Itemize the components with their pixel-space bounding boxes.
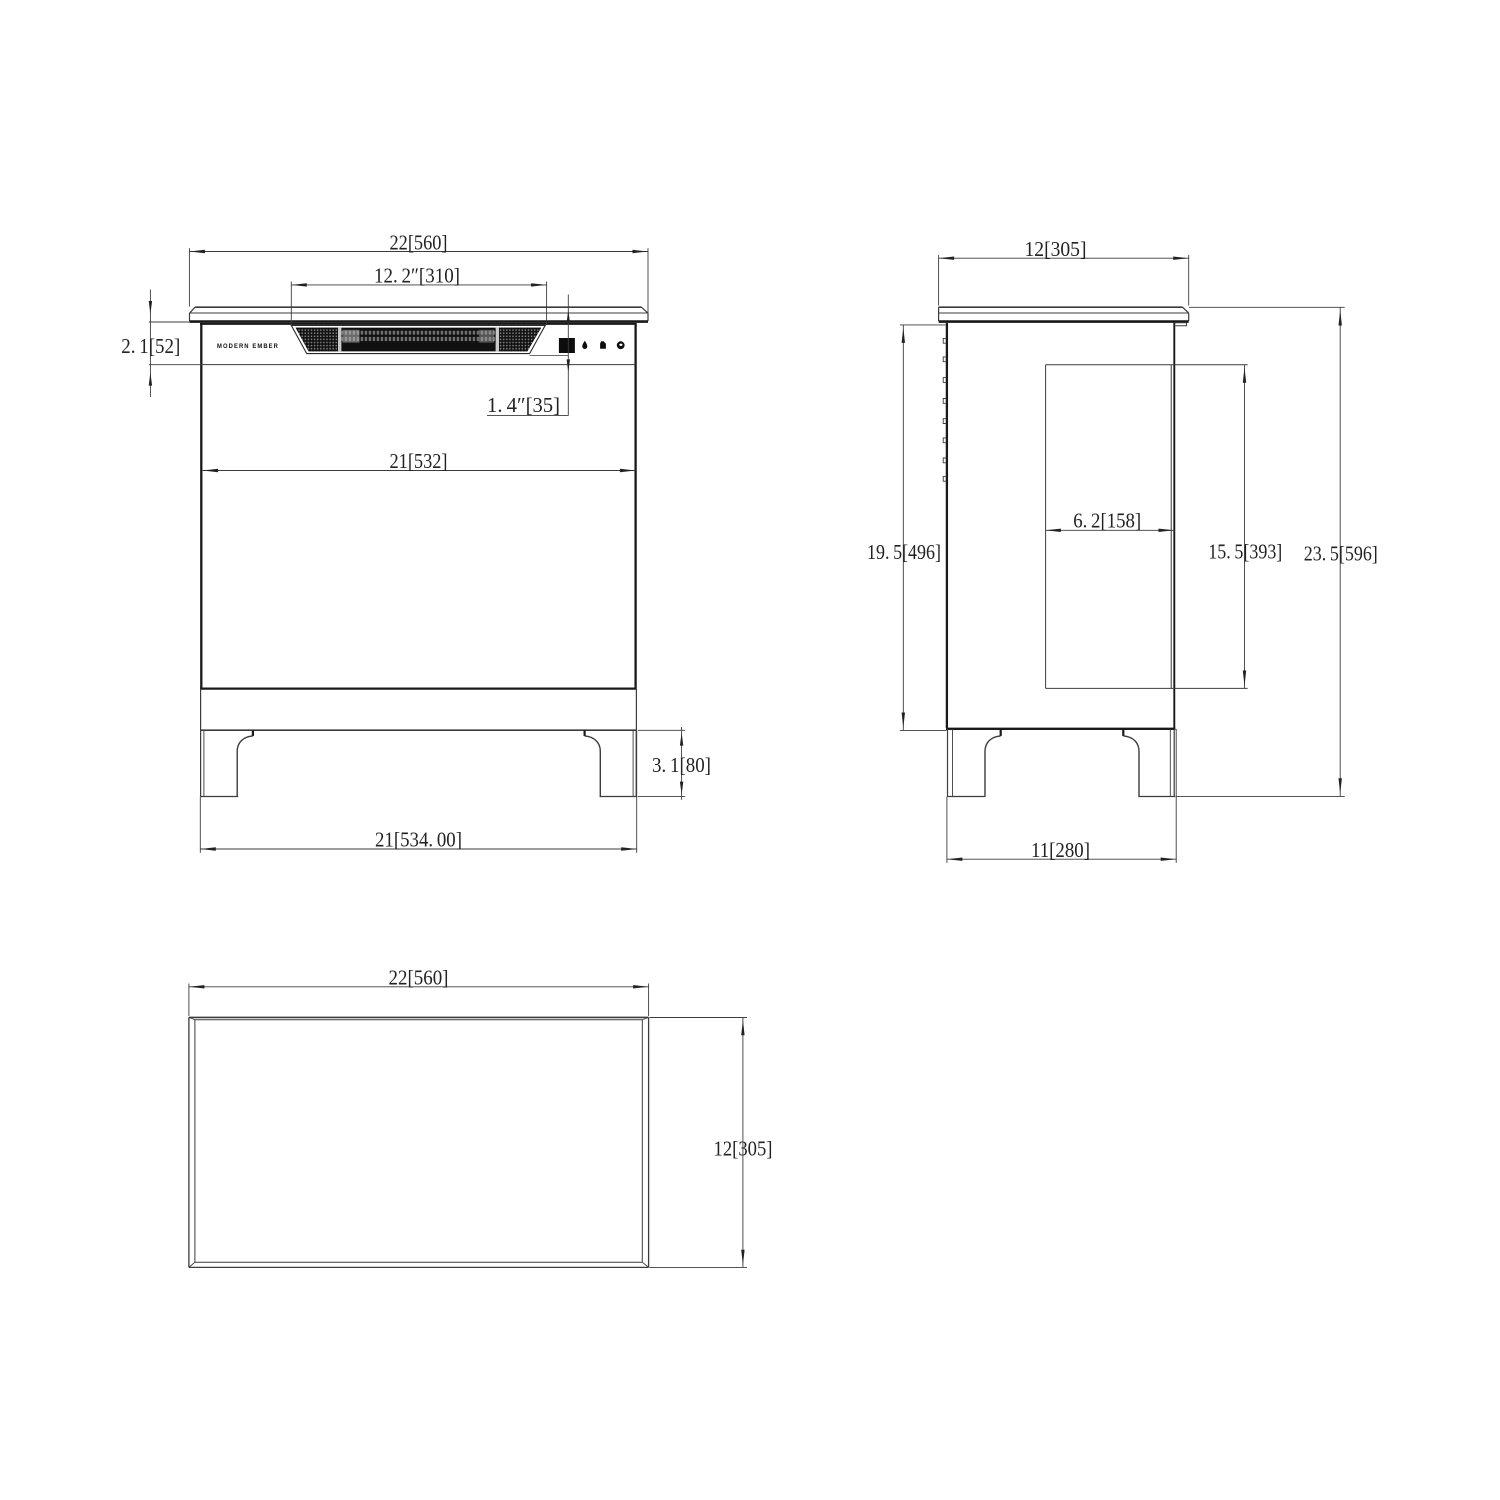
svg-text:21[534. 00]: 21[534. 00] (375, 827, 462, 851)
svg-text:22[560]: 22[560] (390, 230, 448, 254)
svg-text:21[532]: 21[532] (390, 449, 448, 473)
svg-text:MODERN EMBER: MODERN EMBER (217, 344, 279, 350)
svg-text:15. 5[393]: 15. 5[393] (1208, 540, 1282, 564)
svg-text:19. 5[496]: 19. 5[496] (867, 540, 941, 564)
svg-text:11[280]: 11[280] (1031, 838, 1090, 862)
svg-text:12[305]: 12[305] (1025, 237, 1087, 261)
svg-text:1. 4″[35]: 1. 4″[35] (487, 393, 560, 417)
svg-text:22[560]: 22[560] (389, 966, 449, 990)
svg-text:2. 1[52]: 2. 1[52] (121, 334, 180, 358)
svg-text:6. 2[158]: 6. 2[158] (1073, 509, 1141, 533)
svg-text:12. 2″[310]: 12. 2″[310] (374, 264, 460, 288)
svg-text:12[305]: 12[305] (714, 1137, 773, 1161)
svg-text:23. 5[596]: 23. 5[596] (1304, 542, 1378, 566)
svg-text:3. 1[80]: 3. 1[80] (652, 753, 711, 777)
